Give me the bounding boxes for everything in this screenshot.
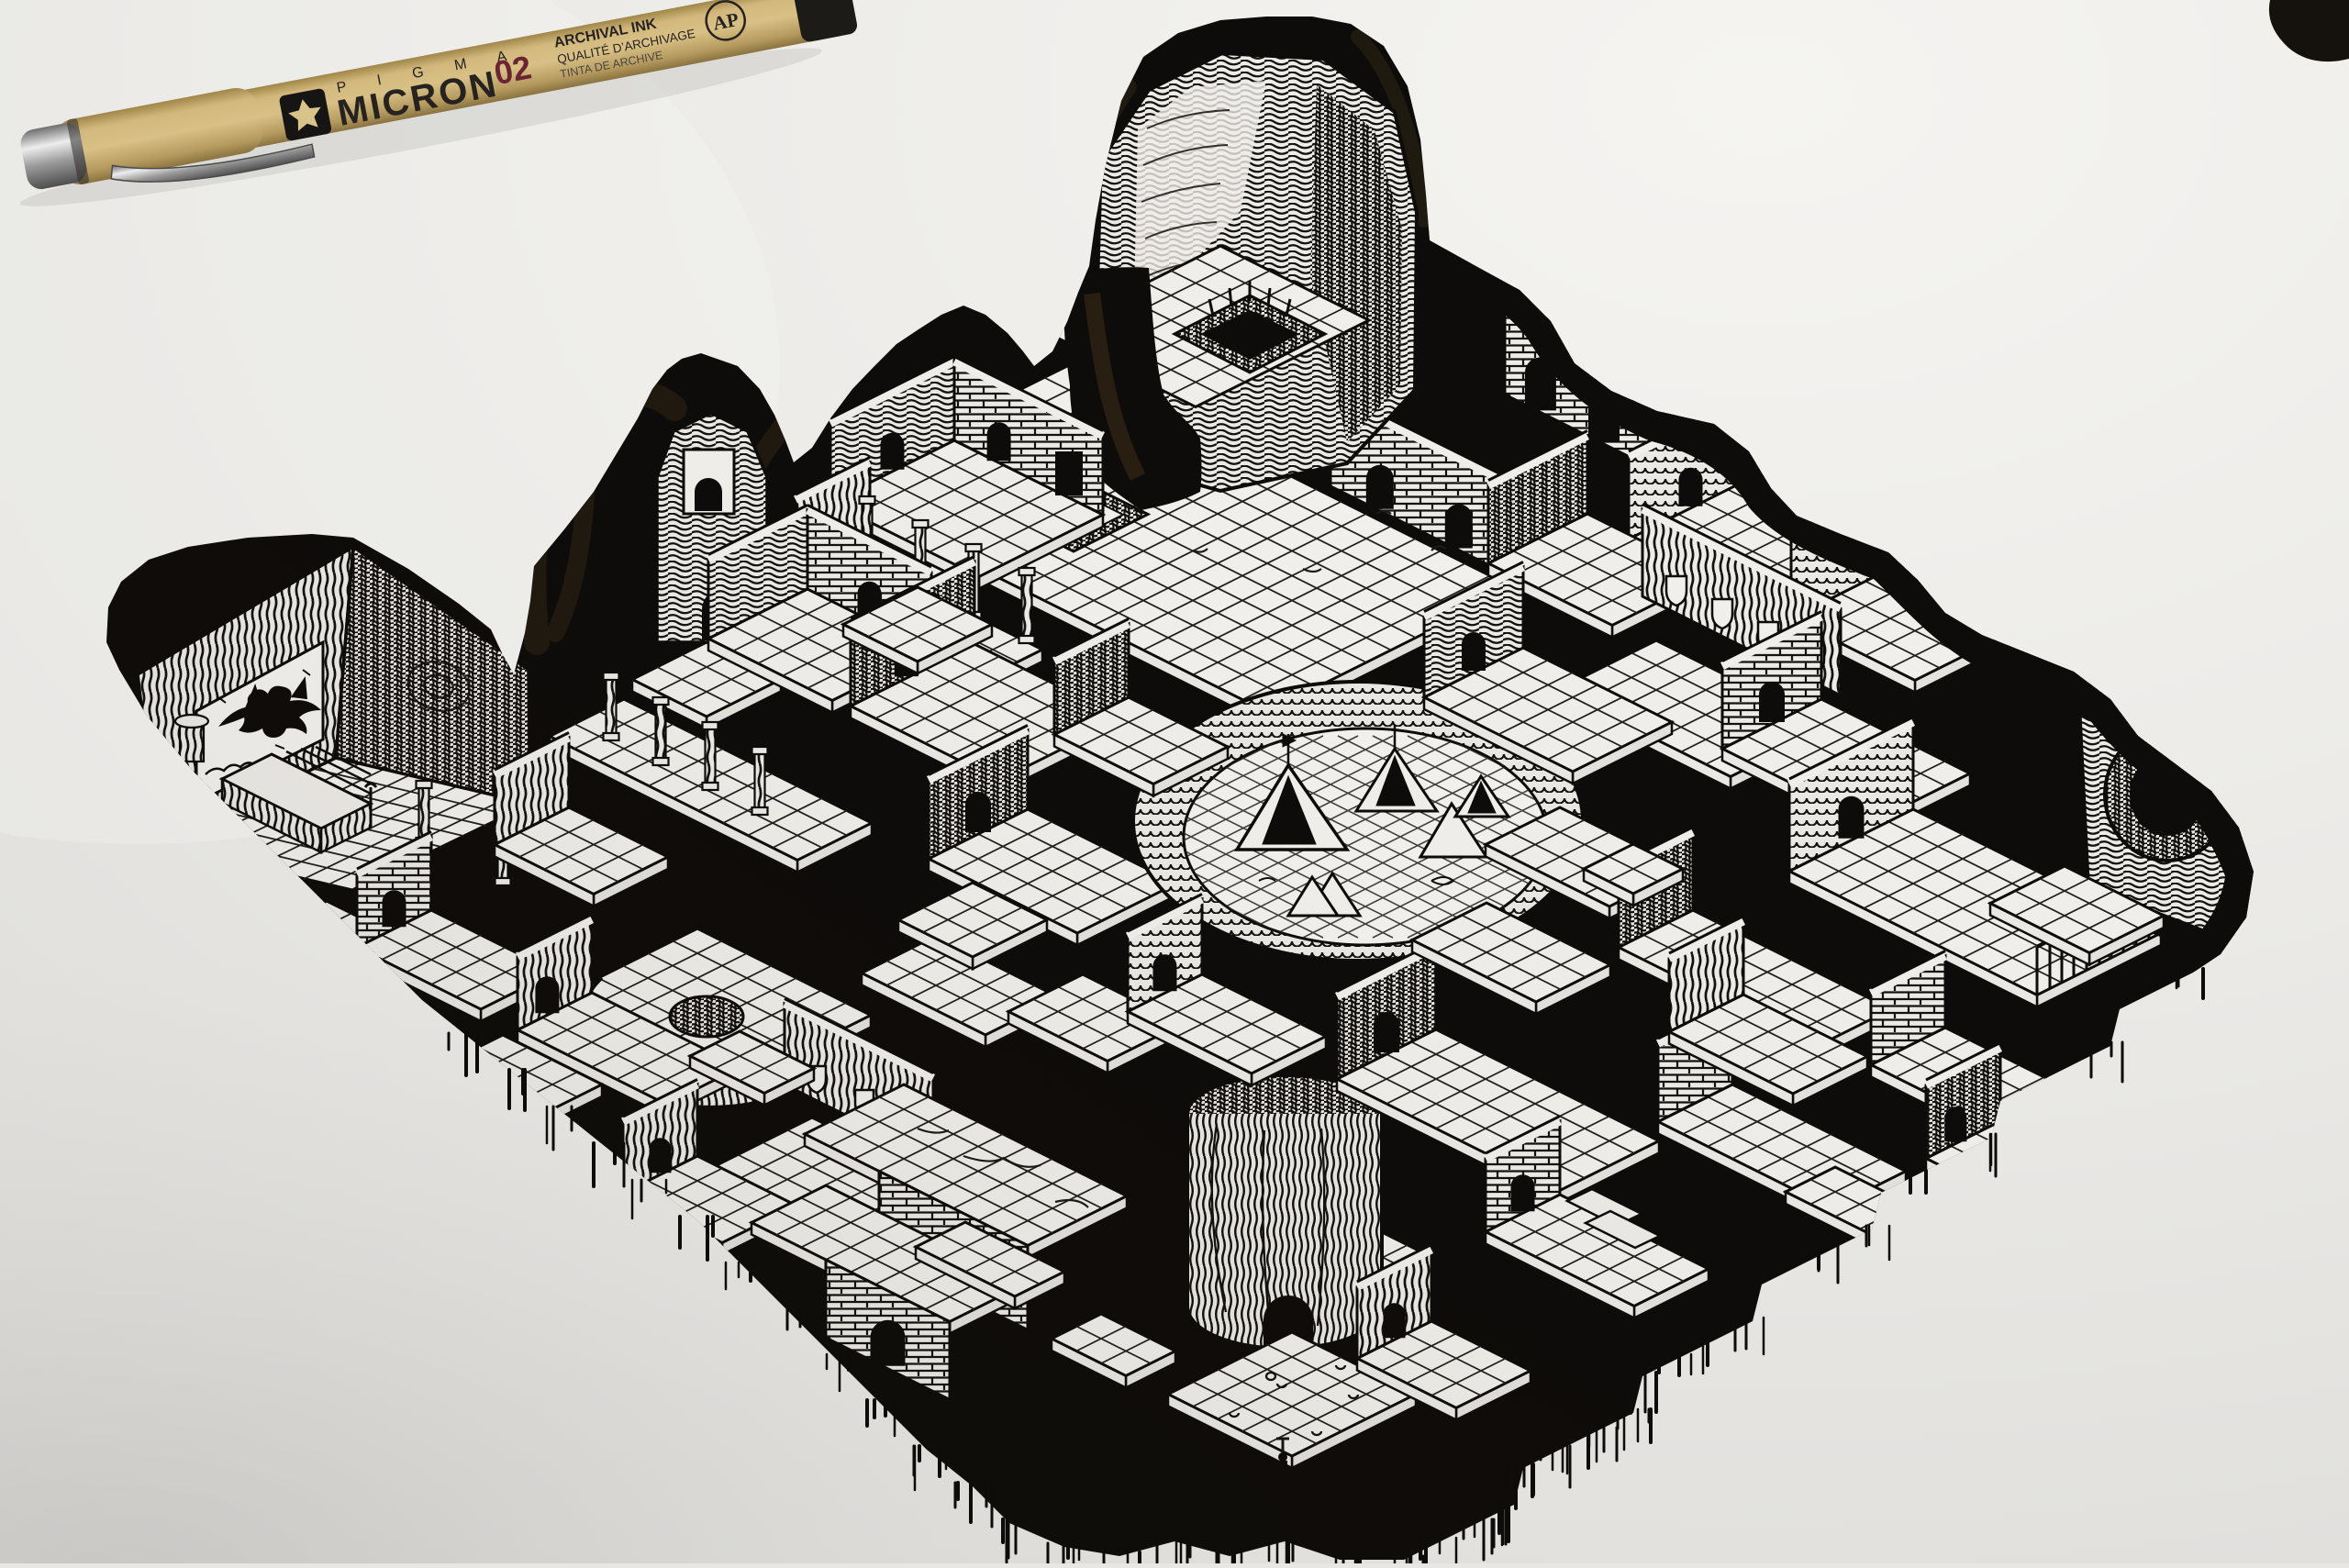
svg-text:02: 02 [491, 48, 534, 92]
